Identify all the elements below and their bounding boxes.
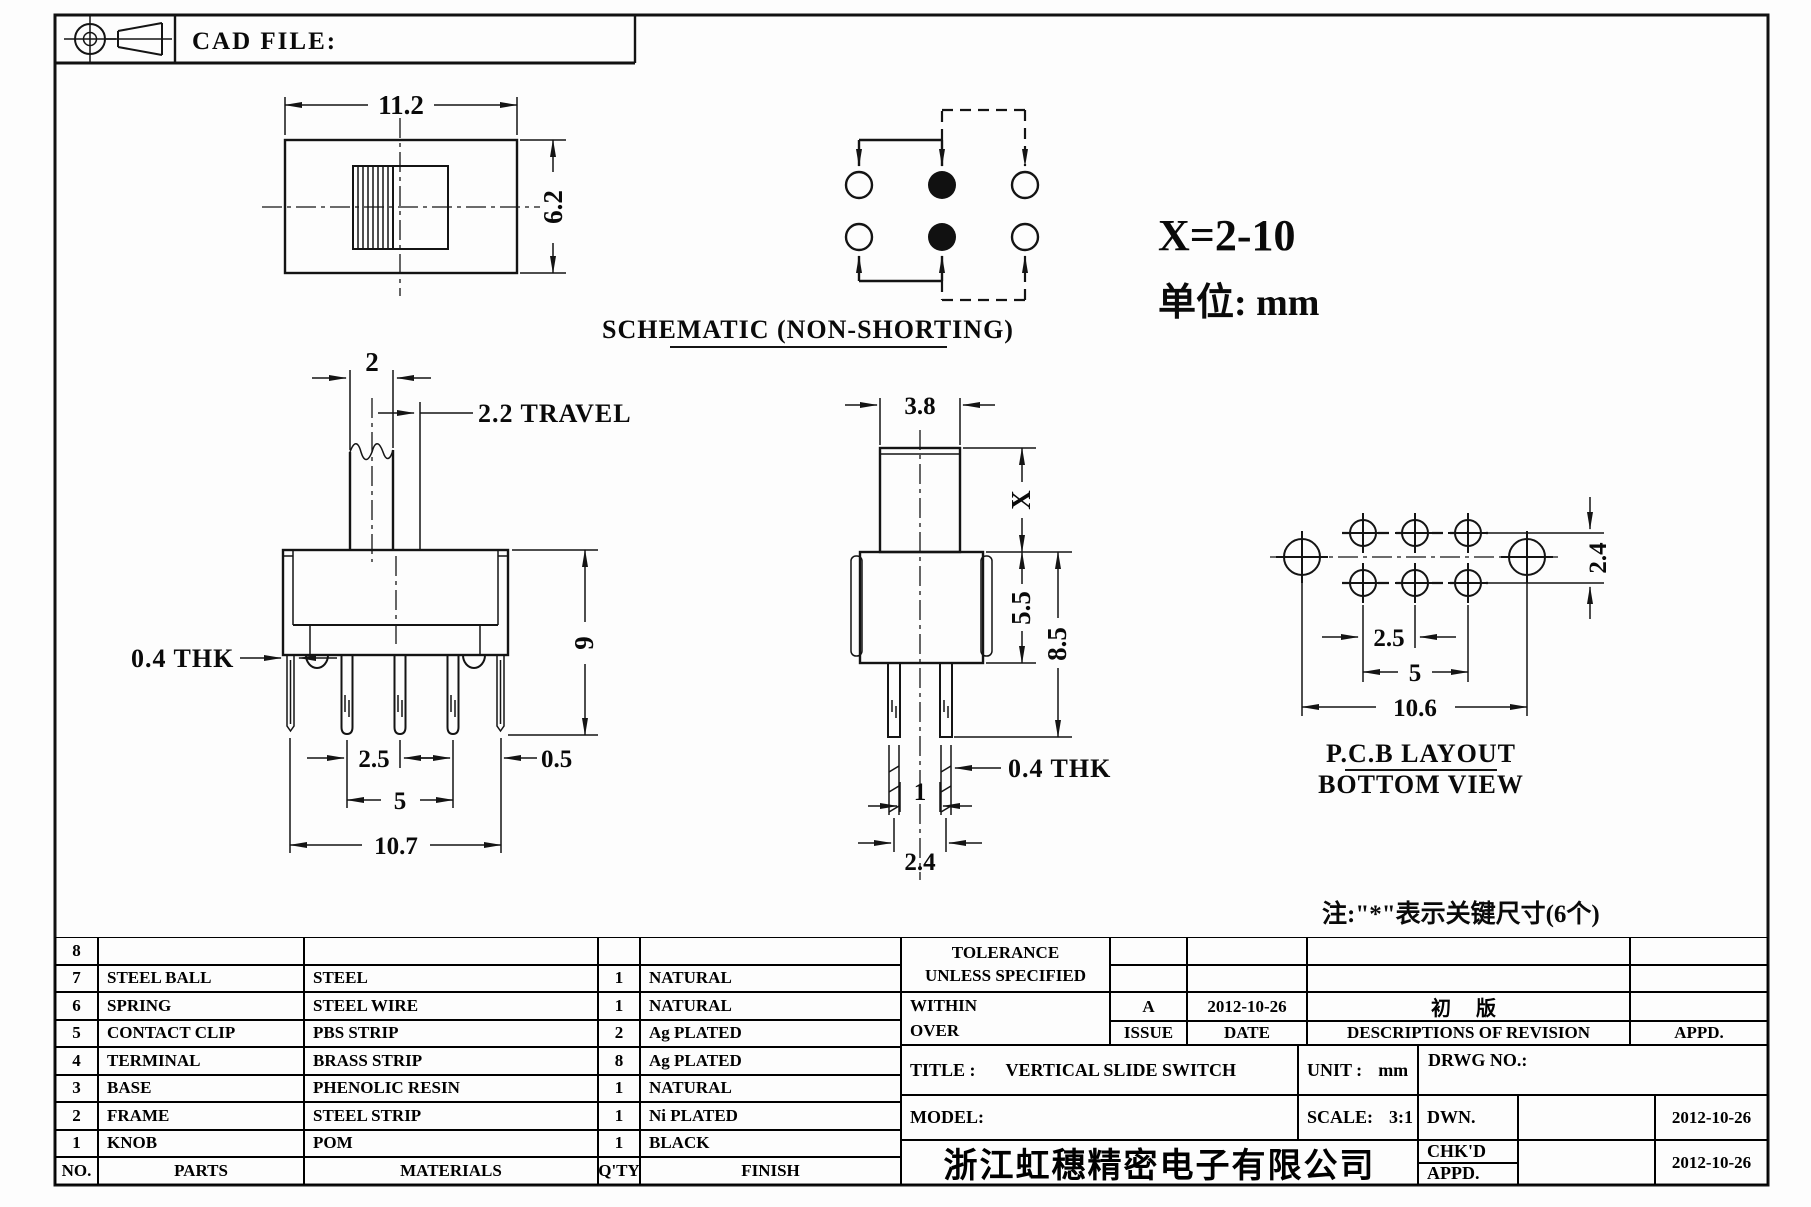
dim-pcb-overall: 10.6	[1393, 695, 1437, 722]
parts-name: BASE	[98, 1075, 304, 1103]
revision-cell-empty	[1187, 937, 1307, 965]
descriptions-header: DESCRIPTIONS OF REVISION	[1307, 1021, 1630, 1045]
parts-finish: NATURAL	[640, 1075, 901, 1103]
parts-qty: 2	[598, 1020, 640, 1048]
parts-finish: NATURAL	[640, 965, 901, 993]
unit-value: mm	[1378, 1060, 1408, 1081]
dwn-signature-empty	[1518, 1095, 1655, 1140]
drwg-no-cell: DRWG NO.:	[1418, 1045, 1768, 1095]
model-cell: MODEL:	[901, 1095, 1298, 1140]
revision-date: 2012-10-26	[1187, 992, 1307, 1021]
dim-side-knob-height: X	[1006, 490, 1036, 510]
appd-label-cell: APPD.	[1418, 1163, 1518, 1186]
dim-front-pin-span: 5	[394, 788, 407, 815]
pcb-caption-line2: BOTTOM VIEW	[1318, 770, 1524, 799]
key-dims-note: 注:"*"表示关键尺寸(6个)	[1322, 899, 1600, 928]
title-label: TITLE :	[910, 1060, 976, 1081]
dim-front-pin-pitch: 2.5	[358, 746, 389, 773]
parts-material: PHENOLIC RESIN	[304, 1075, 598, 1103]
parts-material: POM	[304, 1130, 598, 1158]
issue-header: ISSUE	[1110, 1021, 1187, 1045]
dim-pcb-col-span: 5	[1409, 660, 1422, 687]
tolerance-line1: TOLERANCE	[952, 942, 1059, 964]
dwn-label-cell: DWN.	[1418, 1095, 1518, 1140]
parts-finish: Ag PLATED	[640, 1020, 901, 1048]
dwn-date-cell: 2012-10-26	[1655, 1095, 1768, 1140]
parts-header-materials: MATERIALS	[304, 1157, 598, 1185]
scale-cell: SCALE: 3:1	[1298, 1095, 1418, 1140]
revision-cell-empty	[1307, 965, 1630, 993]
parts-material: PBS STRIP	[304, 1020, 598, 1048]
chkd-appd-date-cell: 2012-10-26	[1655, 1140, 1768, 1185]
within-over-cell: WITHIN OVER	[901, 992, 1110, 1045]
schematic-caption: SCHEMATIC (NON-SHORTING)	[602, 315, 1014, 344]
dim-top-height: 6.2	[538, 190, 568, 224]
parts-header-finish: FINISH	[640, 1157, 901, 1185]
tolerance-cell: TOLERANCE UNLESS SPECIFIED	[901, 937, 1110, 992]
parts-no: 5	[55, 1020, 98, 1048]
dim-front-end-offset: 0.5	[541, 746, 572, 773]
dim-side-pin-pitch: 2.4	[904, 849, 936, 876]
first-angle-projection-icon	[64, 16, 172, 62]
title-value: VERTICAL SLIDE SWITCH	[1006, 1060, 1236, 1081]
company-name: 浙江虹穗精密电子有限公司	[901, 1140, 1418, 1185]
parts-qty: 1	[598, 965, 640, 993]
parts-no: 2	[55, 1102, 98, 1130]
parts-no: 6	[55, 992, 98, 1020]
cad-file-label: CAD FILE:	[192, 28, 337, 55]
tolerance-line2: UNLESS SPECIFIED	[925, 965, 1086, 987]
parts-material: STEEL	[304, 965, 598, 993]
dim-front-height: 9	[569, 636, 599, 650]
unit-label: UNIT :	[1307, 1060, 1362, 1081]
parts-qty: 8	[598, 1047, 640, 1075]
revision-cell-empty	[1110, 965, 1187, 993]
dim-side-thickness: 0.4 THK	[1008, 754, 1111, 783]
title-cell: TITLE : VERTICAL SLIDE SWITCH	[901, 1045, 1298, 1095]
schematic-view: SCHEMATIC (NON-SHORTING)	[602, 110, 1038, 347]
dim-side-overall-height: 8.5	[1042, 627, 1072, 661]
within-label: WITHIN	[910, 996, 977, 1016]
unit-cell: UNIT : mm	[1298, 1045, 1418, 1095]
dim-side-knob-width: 3.8	[904, 393, 935, 420]
revision-appd-empty	[1630, 992, 1768, 1021]
revision-description: 初 版	[1307, 992, 1630, 1021]
parts-header-parts: PARTS	[98, 1157, 304, 1185]
dim-front-overall-width: 10.7	[374, 833, 418, 860]
dim-side-body-height: 5.5	[1006, 591, 1036, 625]
parts-header-no: NO.	[55, 1157, 98, 1185]
revision-cell-empty	[1630, 965, 1768, 993]
front-view: 2 2.2 TRAVEL 9 0.4 THK 2.5 0.5 5 10.7	[131, 347, 632, 860]
parts-finish: BLACK	[640, 1130, 901, 1158]
revision-issue: A	[1110, 992, 1187, 1021]
parts-header-qty: Q'TY	[598, 1157, 640, 1185]
dim-side-pin-gap: 1	[914, 779, 927, 806]
drawing-sheet: CAD FILE: 11.2 6.2	[0, 0, 1811, 1207]
parts-name: CONTACT CLIP	[98, 1020, 304, 1048]
parts-no: 1	[55, 1130, 98, 1158]
revision-cell-empty	[1187, 965, 1307, 993]
dim-top-width: 11.2	[378, 90, 424, 120]
parts-qty: 1	[598, 1130, 640, 1158]
revision-cell-empty	[1630, 937, 1768, 965]
parts-name: KNOB	[98, 1130, 304, 1158]
parts-name: SPRING	[98, 992, 304, 1020]
parts-name: FRAME	[98, 1102, 304, 1130]
chkd-label-cell: CHK'D	[1418, 1140, 1518, 1163]
parts-finish: Ag PLATED	[640, 1047, 901, 1075]
parts-no: 7	[55, 965, 98, 993]
parts-no: 4	[55, 1047, 98, 1075]
parts-material: BRASS STRIP	[304, 1047, 598, 1075]
parts-name	[98, 937, 304, 965]
pcb-caption-line1: P.C.B LAYOUT	[1326, 739, 1516, 768]
parts-finish	[640, 937, 901, 965]
parts-finish: Ni PLATED	[640, 1102, 901, 1130]
dim-pcb-col-pitch: 2.5	[1373, 625, 1404, 652]
scale-value: 3:1	[1389, 1107, 1413, 1128]
revision-cell-empty	[1110, 937, 1187, 965]
parts-qty: 1	[598, 992, 640, 1020]
parts-and-title-block: 8 7 STEEL BALL STEEL 1 NATURAL 6 SPRING …	[55, 937, 1768, 1185]
dim-front-travel: 2.2 TRAVEL	[478, 399, 632, 428]
parts-name: TERMINAL	[98, 1047, 304, 1075]
scale-label: SCALE:	[1307, 1107, 1373, 1128]
parts-no: 3	[55, 1075, 98, 1103]
x-range-note: X=2-10	[1158, 211, 1296, 260]
chkd-signature-empty	[1518, 1140, 1655, 1185]
parts-no: 8	[55, 937, 98, 965]
dim-front-thickness: 0.4 THK	[131, 644, 234, 673]
parts-qty: 1	[598, 1075, 640, 1103]
unit-note: 单位: mm	[1158, 282, 1319, 324]
top-view: 11.2 6.2	[262, 90, 568, 296]
revision-cell-empty	[1307, 937, 1630, 965]
over-label: OVER	[910, 1021, 959, 1041]
parts-material: STEEL STRIP	[304, 1102, 598, 1130]
pcb-layout-view: 2.4 2.5 5 10.6 P.C.B LAYOUT BOTTOM VIEW	[1270, 497, 1612, 799]
parts-qty: 1	[598, 1102, 640, 1130]
parts-qty	[598, 937, 640, 965]
parts-name: STEEL BALL	[98, 965, 304, 993]
appd-header: APPD.	[1630, 1021, 1768, 1045]
parts-material: STEEL WIRE	[304, 992, 598, 1020]
side-view: 3.8 X 5.5 8.5 0.4 THK 1 2.4	[845, 393, 1111, 880]
parts-finish: NATURAL	[640, 992, 901, 1020]
parts-material	[304, 937, 598, 965]
dim-front-knob-width: 2	[365, 347, 379, 377]
dim-pcb-row-pitch: 2.4	[1585, 542, 1612, 574]
date-header: DATE	[1187, 1021, 1307, 1045]
